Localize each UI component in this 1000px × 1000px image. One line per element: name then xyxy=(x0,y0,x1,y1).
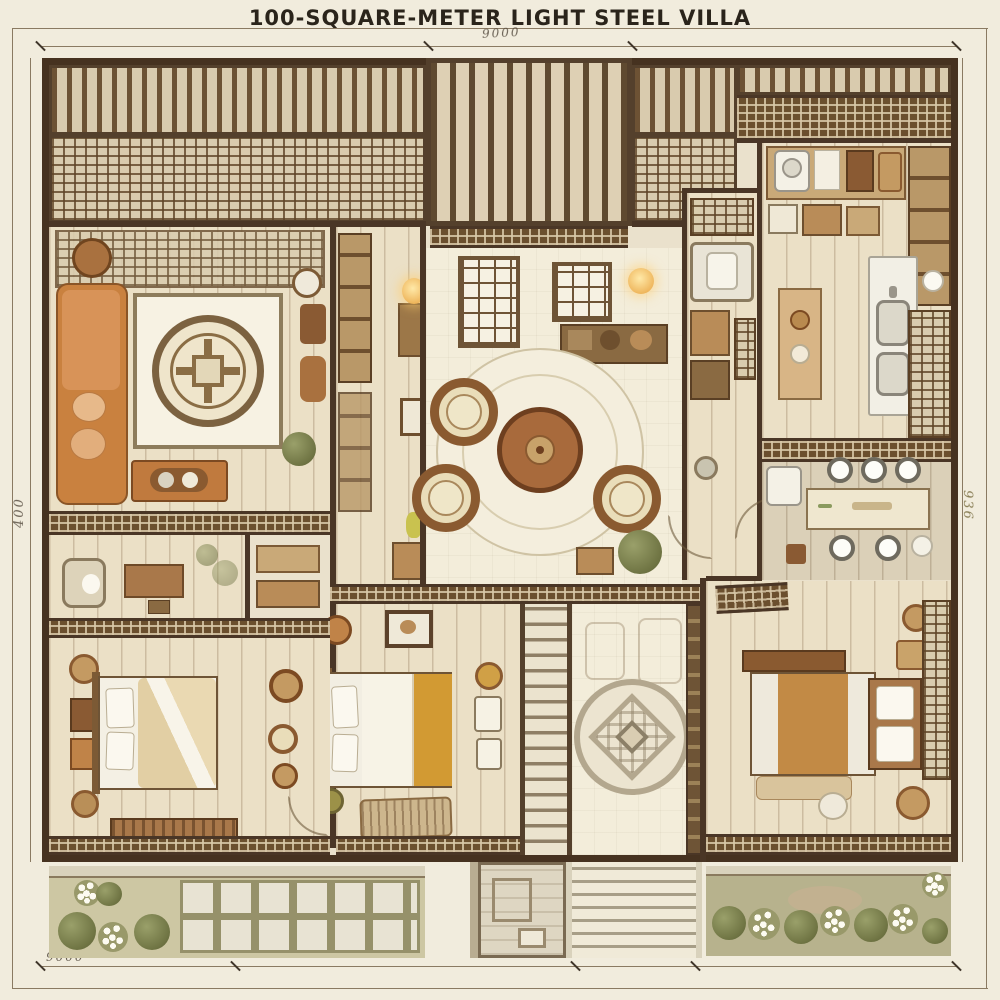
flower-bush xyxy=(888,904,918,934)
garden-right-fence-base xyxy=(706,866,951,876)
utility-lattice-cabinet xyxy=(734,318,756,380)
lantern xyxy=(628,268,654,294)
flower-bush xyxy=(922,872,948,898)
shelf-ornament xyxy=(300,356,326,402)
dining-cabinet-white xyxy=(766,466,802,506)
table-runner xyxy=(852,502,892,510)
utility-cabinet xyxy=(690,310,730,356)
bedroom3-pouf-white xyxy=(818,792,848,820)
cutting-board xyxy=(814,150,840,190)
bedroom3-lattice-panel xyxy=(715,582,788,614)
garden-bush xyxy=(854,908,888,942)
console-bowl xyxy=(630,330,652,350)
study-desk xyxy=(124,564,184,598)
dim-line-right-inner xyxy=(962,58,963,862)
dim-line-bottom-inner xyxy=(40,966,958,967)
bedroom2-stool xyxy=(475,662,503,690)
island-sink-basin xyxy=(876,352,910,396)
bed-sheet xyxy=(362,674,414,786)
bedroom1-south-lattice xyxy=(49,836,330,855)
shoji-screen xyxy=(458,256,520,348)
tea-chair-seat xyxy=(428,480,464,516)
lattice-band-top-right xyxy=(737,95,951,141)
closet-shelf xyxy=(256,580,320,608)
dining-chair xyxy=(861,457,887,483)
bed-pillow xyxy=(105,688,134,729)
floor-relief-carving xyxy=(638,618,682,684)
bedroom1-side-table xyxy=(272,763,298,789)
bench-cushion xyxy=(876,726,914,762)
corridor-cabinet xyxy=(338,233,372,383)
potted-plant xyxy=(282,432,316,466)
counter-jar xyxy=(878,152,902,192)
wall-study-closet xyxy=(245,535,250,618)
bedroom2-woven-bench xyxy=(359,796,452,839)
south-center-transom-lattice xyxy=(330,584,702,604)
staircase xyxy=(520,604,572,855)
tea-chair-seat xyxy=(446,394,482,430)
floor-relief-carving xyxy=(585,622,625,680)
tea-bowl xyxy=(158,472,174,488)
gate-panel-inset xyxy=(492,878,532,922)
gate-panel-inset xyxy=(518,928,546,948)
island-faucet xyxy=(889,286,897,298)
roof-slats-left xyxy=(49,65,426,135)
kitchen-shelf-box xyxy=(802,204,842,236)
dining-chair xyxy=(827,457,853,483)
closet-shelf xyxy=(256,545,320,573)
study-nook-transom xyxy=(49,511,330,535)
garden-bush xyxy=(784,910,818,944)
sofa-cushion xyxy=(62,290,120,390)
armchair-throw xyxy=(82,574,100,594)
bar-stool xyxy=(922,270,944,292)
tea-bowl xyxy=(182,472,198,488)
tea-chair-seat xyxy=(609,481,645,517)
bedroom2-chair xyxy=(476,738,502,770)
roof-slats-center-right xyxy=(632,65,737,135)
sketched-tree xyxy=(196,544,218,566)
basket-pouf xyxy=(72,238,112,278)
dining-chair xyxy=(911,535,933,557)
dim-line-right-outer xyxy=(986,28,987,988)
roof-eave-right xyxy=(737,65,951,95)
bench-cushion xyxy=(876,686,914,720)
gate-pillar xyxy=(470,862,478,958)
dining-chair xyxy=(895,457,921,483)
dining-chair xyxy=(875,535,901,561)
right-dimension-label: 936 xyxy=(960,490,975,521)
prep-bowl xyxy=(790,310,810,330)
floor-plan-canvas: 100-SQUARE-METER LIGHT STEEL VILLA 9000 … xyxy=(0,0,1000,1000)
bed-pillow xyxy=(331,734,358,773)
kitchen-shelf-box xyxy=(768,204,798,234)
flower-bush xyxy=(820,906,850,936)
corridor-cabinet xyxy=(338,392,372,512)
dining-transom-lattice xyxy=(762,438,951,462)
dining-chair xyxy=(829,535,855,561)
dim-line-bottom-outer xyxy=(12,988,988,989)
console-bowl xyxy=(600,330,620,350)
left-dimension-label: 400 xyxy=(12,497,27,528)
flower-bush xyxy=(98,922,128,952)
tea-table-center-dot xyxy=(536,446,544,454)
sink-basin xyxy=(782,158,802,178)
utility-stool xyxy=(694,456,718,480)
sketched-tree xyxy=(212,560,238,586)
flower-bush xyxy=(748,908,780,940)
rug-medallion-center xyxy=(192,355,224,387)
side-table xyxy=(292,268,322,298)
bedroom1-pouf xyxy=(71,790,99,818)
garden-bush xyxy=(922,918,948,944)
desk-stool xyxy=(148,600,170,614)
island-sink-basin xyxy=(876,300,910,346)
kitchen-shelf-box xyxy=(846,206,880,236)
sofa-pillow xyxy=(72,392,106,422)
garden-bush xyxy=(712,906,746,940)
dim-line-left-inner xyxy=(30,58,31,862)
bed-pillow xyxy=(105,732,134,771)
shelf-ornament xyxy=(300,304,326,344)
garden-bush xyxy=(58,912,96,950)
shoji-screen xyxy=(552,262,612,322)
clerestory-lattice-left xyxy=(49,135,426,223)
drawer-unit xyxy=(576,547,614,575)
courtyard-plant xyxy=(618,530,662,574)
sofa-pillow xyxy=(70,428,106,460)
entrance-steps xyxy=(566,862,702,958)
bedroom2-chair xyxy=(474,696,502,732)
utility-sink-basin xyxy=(706,252,738,290)
bedroom2-south-lattice xyxy=(336,836,520,855)
floor-box xyxy=(786,544,806,564)
bedroom3-duvet-caramel xyxy=(778,674,848,774)
garden-bush xyxy=(96,882,122,906)
stove xyxy=(846,150,874,192)
console-compartment xyxy=(568,330,592,350)
bedroom3-headboard xyxy=(742,650,846,672)
bed-pillow xyxy=(331,685,359,728)
dim-line-top-inner xyxy=(40,46,958,47)
entry-transom-lattice xyxy=(430,226,628,248)
stepping-stone-pavers xyxy=(180,880,420,953)
prep-bowl xyxy=(790,344,810,364)
utility-cabinet-top xyxy=(690,198,754,236)
bedroom1-side-table xyxy=(268,724,298,754)
bedroom3-south-lattice xyxy=(706,834,951,855)
bed-duvet-folded xyxy=(138,678,216,788)
wall-art-motif xyxy=(400,620,416,634)
utility-cabinet xyxy=(690,360,730,400)
top-dimension-note: 9000 xyxy=(482,25,521,41)
kitchen-lattice-screen xyxy=(908,310,951,438)
garden-bush xyxy=(134,914,170,950)
bedroom3-lattice-screen xyxy=(922,600,951,780)
entry-canopy xyxy=(426,58,632,226)
bedroom1-side-table xyxy=(269,669,303,703)
garden-left-fence-base xyxy=(49,866,425,878)
bed-duvet-amber xyxy=(414,674,452,786)
table-garnish xyxy=(818,504,832,508)
bedroom3-swirl-rug xyxy=(896,786,930,820)
bedroom1-transom xyxy=(49,618,330,638)
